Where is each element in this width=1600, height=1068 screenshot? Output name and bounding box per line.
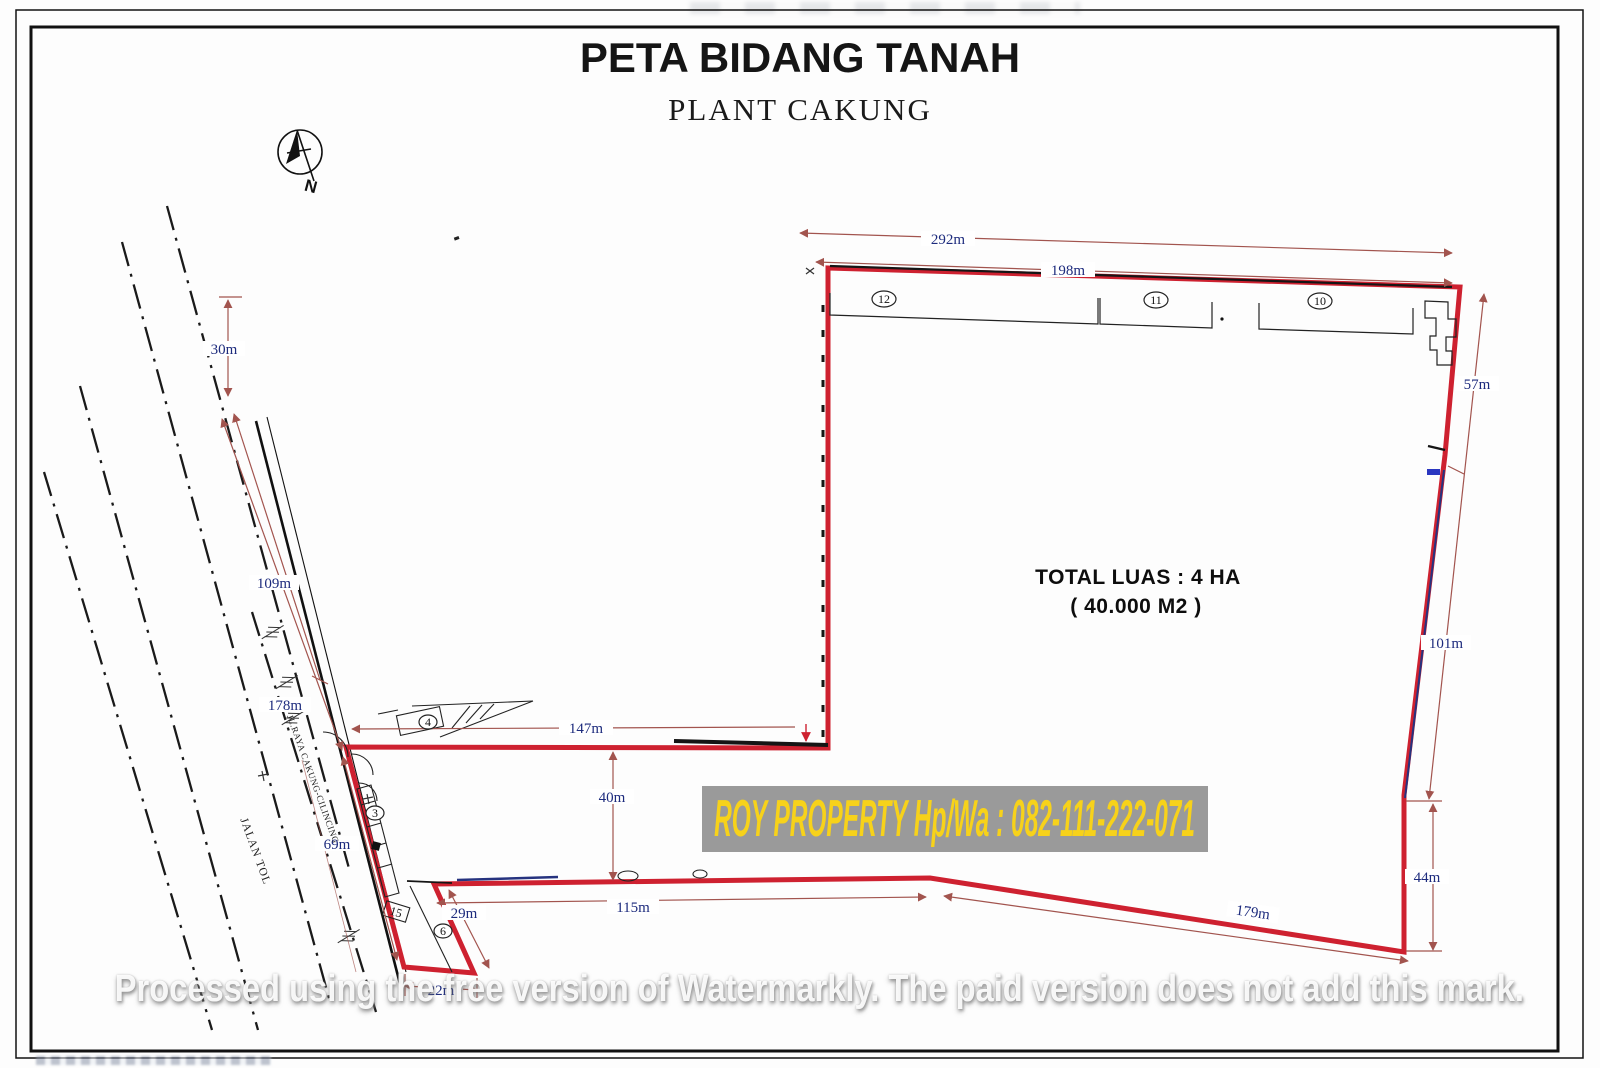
- parcel-boundary: [346, 268, 1460, 973]
- building-3-label: 3: [372, 806, 378, 820]
- agent-contact-banner: ROY PROPERTY Hp/Wa : 082-111-222-071: [702, 786, 1208, 852]
- dim-road-upper: 109m: [257, 576, 292, 592]
- dim-strip-side: 29m: [451, 906, 478, 922]
- dim-road-lower: 178m: [268, 698, 303, 714]
- dimension-labels: 292m 198m 57m 101m 44m 179m 115m 29m 22m…: [203, 231, 1499, 999]
- dim-top-inner: 198m: [1051, 263, 1086, 279]
- toll-road-label: JALAN TOL: [237, 816, 272, 886]
- agent-contact-text: ROY PROPERTY Hp/Wa : 082-111-222-071: [715, 789, 1196, 849]
- building-10-label: 10: [1314, 294, 1326, 308]
- map-speck: [454, 236, 460, 241]
- land-plot-map-page: PETA BIDANG TANAH PLANT CAKUNG N: [0, 0, 1600, 1068]
- map-frame: [16, 10, 1583, 1058]
- illegible-caption: [36, 1056, 271, 1065]
- dim-right-upper: 57m: [1464, 377, 1491, 393]
- dim-bottom-right: 179m: [1235, 903, 1271, 924]
- dim-right-middle: 101m: [1429, 636, 1464, 652]
- dim-inner-bottom: 147m: [569, 721, 604, 737]
- total-area-line1: TOTAL LUAS : 4 HA: [1035, 566, 1241, 589]
- total-area-line2: ( 40.000 M2 ): [1070, 595, 1201, 618]
- compass-n-label: N: [302, 176, 319, 198]
- dim-right-lower: 44m: [1414, 870, 1441, 886]
- dim-top-outer: 292m: [931, 232, 966, 248]
- dim-strip-bottom: 22m: [428, 983, 455, 999]
- building-12-label: 12: [878, 292, 890, 306]
- dim-inner-gap: 40m: [599, 790, 626, 806]
- building-11-label: 11: [1150, 293, 1162, 307]
- dim-road-top: 30m: [211, 342, 238, 358]
- plus-marks: [258, 268, 814, 804]
- building-4-label: 4: [425, 715, 431, 729]
- warehouse-outlines: [830, 293, 1456, 365]
- gate-structure: [378, 701, 533, 737]
- dimension-lines: [219, 233, 1484, 999]
- frontage-structures: [323, 732, 707, 972]
- toll-road-lines: [44, 206, 376, 1030]
- dim-bottom-middle: 115m: [616, 900, 650, 916]
- plot-map-canvas: N: [0, 0, 1600, 1068]
- compass-north-icon: N: [278, 130, 322, 197]
- building-6-label: 6: [440, 924, 446, 938]
